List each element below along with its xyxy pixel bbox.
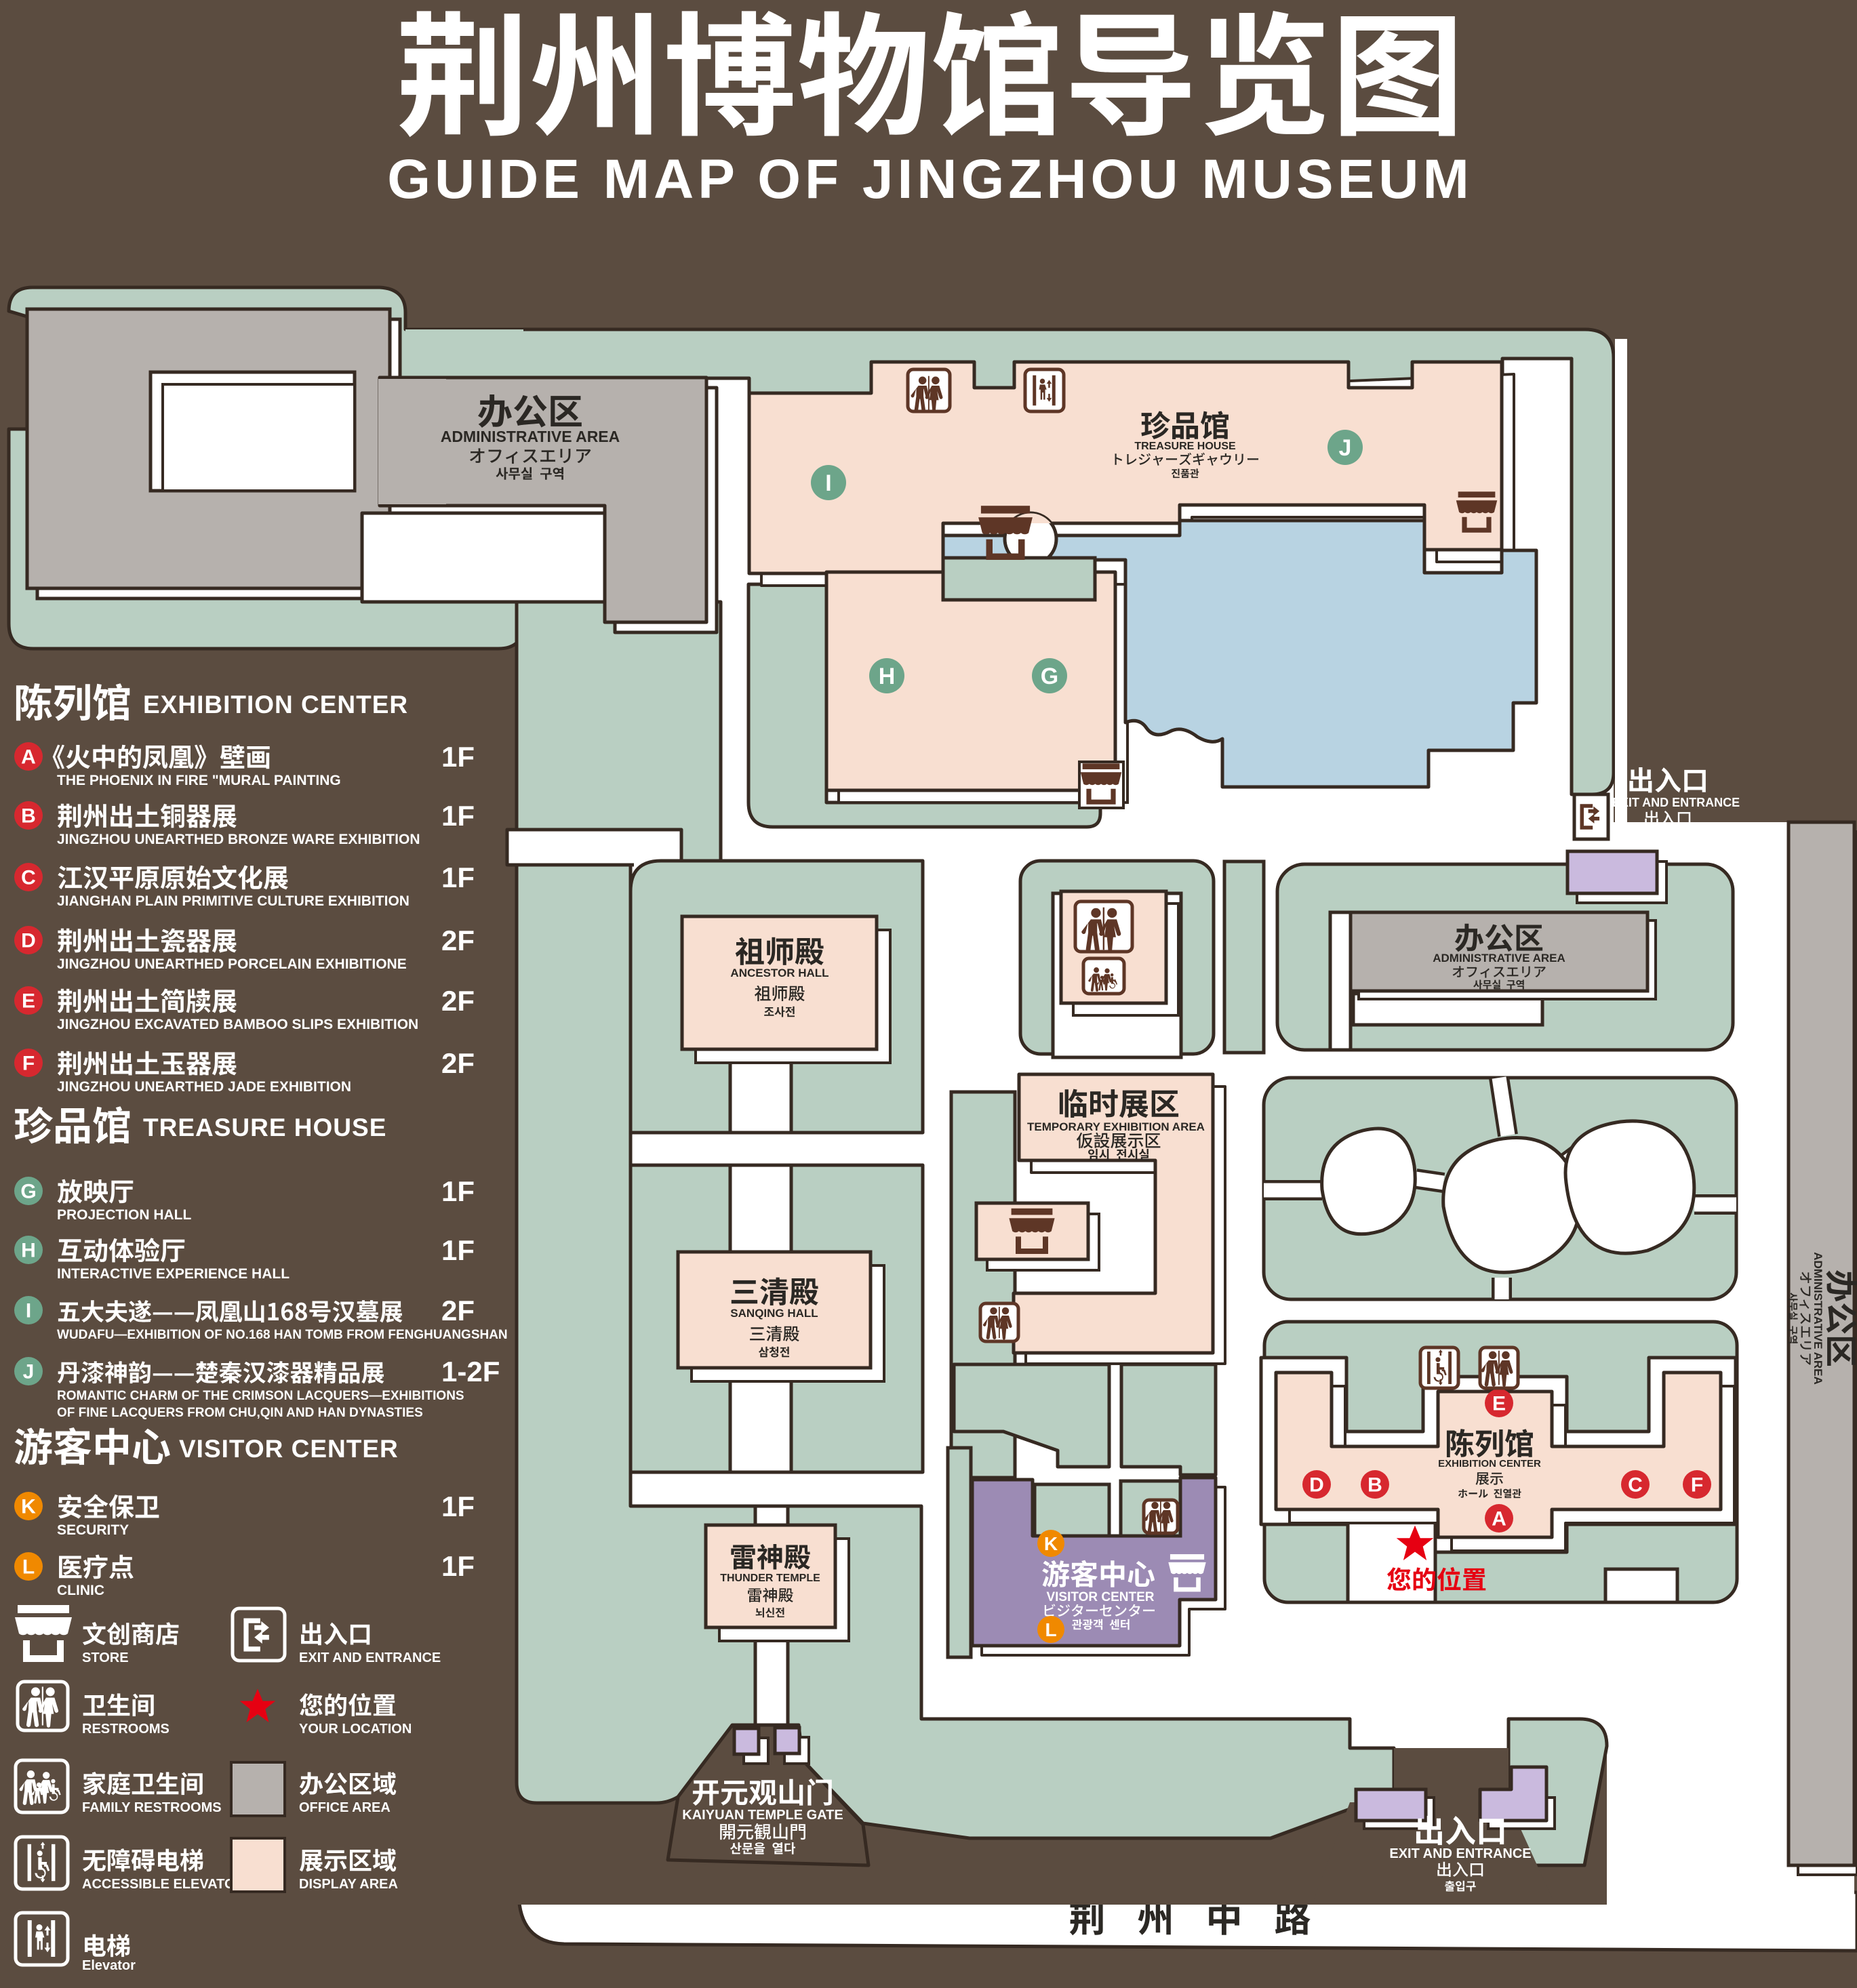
svg-text:YOUR LOCATION: YOUR LOCATION xyxy=(299,1722,412,1737)
svg-text:I: I xyxy=(26,1300,31,1322)
svg-text:2F: 2F xyxy=(441,985,475,1017)
svg-text:L: L xyxy=(1045,1619,1056,1640)
svg-text:TEMPORARY EXHIBITION AREA: TEMPORARY EXHIBITION AREA xyxy=(1027,1120,1205,1133)
svg-text:STORE: STORE xyxy=(82,1650,129,1665)
svg-text:J: J xyxy=(1339,435,1352,461)
svg-text:OF FINE LACQUERS FROM CHU,QIN: OF FINE LACQUERS FROM CHU,QIN AND HAN DY… xyxy=(57,1406,423,1420)
svg-text:ACCESSIBLE ELEVATOR: ACCESSIBLE ELEVATOR xyxy=(82,1877,245,1892)
svg-text:JINGZHOU EXCAVATED BAMBOO SLIP: JINGZHOU EXCAVATED BAMBOO SLIPS EXHIBITI… xyxy=(57,1017,418,1032)
svg-text:CLINIC: CLINIC xyxy=(57,1583,104,1598)
svg-text:L: L xyxy=(22,1556,35,1579)
svg-text:G: G xyxy=(1041,664,1058,689)
svg-text:VISITOR CENTER: VISITOR CENTER xyxy=(179,1435,399,1463)
svg-text:WUDAFU—EXHIBITION OF NO.168 HA: WUDAFU—EXHIBITION OF NO.168 HAN TOMB FRO… xyxy=(57,1328,508,1342)
svg-text:TREASURE HOUSE: TREASURE HOUSE xyxy=(1134,441,1236,452)
svg-text:ADMINISTRATIVE AREA: ADMINISTRATIVE AREA xyxy=(1812,1252,1824,1385)
svg-text:B: B xyxy=(21,805,36,828)
svg-text:1F: 1F xyxy=(441,1490,475,1522)
svg-text:ADMINISTRATIVE AREA: ADMINISTRATIVE AREA xyxy=(1433,952,1565,965)
svg-text:ANCESTOR HALL: ANCESTOR HALL xyxy=(730,967,828,979)
svg-text:PROJECTION HALL: PROJECTION HALL xyxy=(57,1207,192,1223)
svg-text:FAMILY RESTROOMS: FAMILY RESTROOMS xyxy=(82,1800,222,1815)
svg-text:1F: 1F xyxy=(441,1234,475,1266)
svg-text:K: K xyxy=(21,1496,36,1518)
svg-text:EXHIBITION CENTER: EXHIBITION CENTER xyxy=(143,691,408,718)
svg-text:I: I xyxy=(825,470,831,496)
svg-text:C: C xyxy=(21,867,36,889)
svg-text:H: H xyxy=(21,1240,36,1262)
svg-text:GUIDE MAP OF JINGZHOU MUSEUM: GUIDE MAP OF JINGZHOU MUSEUM xyxy=(387,148,1473,210)
svg-text:F: F xyxy=(1691,1474,1703,1497)
svg-text:1F: 1F xyxy=(441,1550,475,1582)
svg-text:SANQING HALL: SANQING HALL xyxy=(730,1307,818,1320)
svg-text:OFFICE AREA: OFFICE AREA xyxy=(299,1800,391,1815)
svg-text:EXIT AND ENTRANCE: EXIT AND ENTRANCE xyxy=(299,1650,441,1665)
svg-text:J: J xyxy=(23,1361,35,1383)
svg-text:SECURITY: SECURITY xyxy=(57,1522,129,1538)
svg-text:2F: 2F xyxy=(441,925,475,956)
svg-text:B: B xyxy=(1367,1474,1382,1497)
svg-text:RESTROOMS: RESTROOMS xyxy=(82,1722,169,1737)
svg-text:ADMINISTRATIVE AREA: ADMINISTRATIVE AREA xyxy=(441,428,620,445)
svg-text:D: D xyxy=(1309,1474,1324,1497)
svg-text:G: G xyxy=(20,1181,36,1203)
svg-text:THUNDER TEMPLE: THUNDER TEMPLE xyxy=(720,1573,820,1584)
svg-text:1F: 1F xyxy=(441,741,475,773)
svg-text:H: H xyxy=(879,664,896,689)
svg-text:TREASURE HOUSE: TREASURE HOUSE xyxy=(143,1114,386,1141)
svg-text:INTERACTIVE EXPERIENCE HALL: INTERACTIVE EXPERIENCE HALL xyxy=(57,1266,289,1282)
svg-text:EXIT AND ENTRANCE: EXIT AND ENTRANCE xyxy=(1612,796,1740,809)
svg-text:A: A xyxy=(1492,1508,1506,1530)
svg-text:EXIT AND ENTRANCE: EXIT AND ENTRANCE xyxy=(1389,1846,1531,1861)
svg-text:JINGZHOU UNEARTHED PORCELAIN E: JINGZHOU UNEARTHED PORCELAIN EXHIBITIONE xyxy=(57,956,407,972)
svg-text:E: E xyxy=(22,990,35,1013)
svg-text:2F: 2F xyxy=(441,1295,475,1326)
svg-text:1-2F: 1-2F xyxy=(441,1356,500,1387)
svg-text:VISITOR CENTER: VISITOR CENTER xyxy=(1046,1590,1154,1604)
svg-text:1F: 1F xyxy=(441,861,475,893)
svg-text:E: E xyxy=(1492,1393,1506,1415)
svg-text:1F: 1F xyxy=(441,1175,475,1207)
svg-text:THE PHOENIX IN FIRE "MURAL PAI: THE PHOENIX IN FIRE "MURAL PAINTING xyxy=(57,773,341,788)
svg-text:JINGZHOU UNEARTHED JADE EXHIBI: JINGZHOU UNEARTHED JADE EXHIBITION xyxy=(57,1079,351,1095)
svg-text:ROMANTIC CHARM OF THE CRIMSON: ROMANTIC CHARM OF THE CRIMSON LACQUERS—E… xyxy=(57,1389,464,1403)
svg-text:F: F xyxy=(22,1053,35,1075)
svg-text:JINGZHOU UNEARTHED BRONZE WARE: JINGZHOU UNEARTHED BRONZE WARE EXHIBITIO… xyxy=(57,832,420,847)
svg-text:DISPLAY AREA: DISPLAY AREA xyxy=(299,1877,398,1892)
svg-text:1F: 1F xyxy=(441,800,475,832)
svg-text:KAIYUAN TEMPLE GATE: KAIYUAN TEMPLE GATE xyxy=(682,1808,843,1823)
svg-text:A: A xyxy=(21,746,36,769)
svg-text:K: K xyxy=(1044,1533,1058,1554)
svg-text:2F: 2F xyxy=(441,1047,475,1079)
svg-text:C: C xyxy=(1628,1474,1643,1497)
svg-text:JIANGHAN PLAIN PRIMITIVE CULTU: JIANGHAN PLAIN PRIMITIVE CULTURE EXHIBIT… xyxy=(57,893,410,909)
svg-text:EXHIBITION CENTER: EXHIBITION CENTER xyxy=(1438,1458,1541,1469)
svg-text:Elevator: Elevator xyxy=(82,1958,136,1973)
svg-text:D: D xyxy=(21,930,36,952)
